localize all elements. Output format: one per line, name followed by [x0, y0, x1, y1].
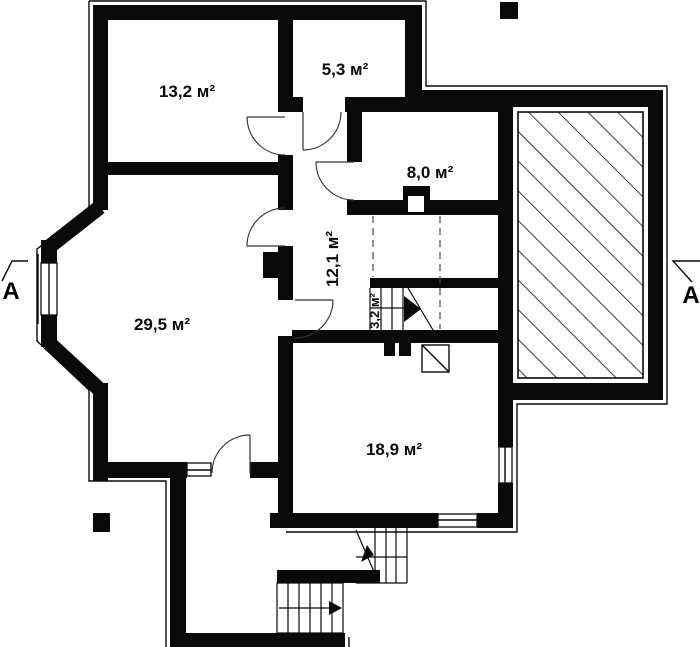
wall-segment — [498, 400, 513, 447]
section-letter-left: A — [2, 278, 19, 305]
door-arc-8-0 — [316, 162, 354, 200]
chimney-stub — [399, 343, 411, 356]
wall-segment — [93, 5, 422, 20]
floor-plan: A A 13,2 м² 5,3 м² 8,0 м² 12,1 м² 3,2 м²… — [0, 0, 700, 647]
room-label-13-2: 13,2 м² — [159, 82, 215, 101]
wall-segment — [292, 330, 498, 343]
wall-segment — [278, 336, 293, 528]
door-arc-13-2 — [247, 117, 285, 155]
wall-segment — [170, 478, 186, 647]
wall-segment — [170, 633, 345, 647]
section-line-right — [673, 261, 700, 282]
wall-segment — [41, 240, 57, 265]
wall-segment — [108, 162, 280, 175]
wall-segment — [270, 513, 438, 528]
stair-direction-arrow — [404, 296, 421, 322]
terrace-hatch-area — [518, 112, 643, 378]
wall-bay-diagonal-bottom — [49, 343, 100, 390]
wall-segment — [293, 97, 303, 112]
section-cut-square-bottom — [93, 513, 110, 532]
room-label-3-2: 3,2 м² — [367, 293, 382, 329]
wall-segment — [347, 112, 362, 162]
room-label-12-1: 12,1 м² — [323, 231, 342, 287]
wall-segment — [405, 18, 422, 107]
stair-arrow-head — [329, 601, 342, 615]
room-label-18-9: 18,9 м² — [366, 440, 422, 459]
wall-segment — [648, 90, 663, 400]
wall-segment — [370, 278, 498, 288]
windows — [38, 254, 512, 527]
wall-segment — [278, 155, 293, 210]
floor-plan-drawing: A A 13,2 м² 5,3 м² 8,0 м² 12,1 м² 3,2 м²… — [0, 0, 700, 647]
wall-segment — [422, 90, 663, 107]
shaft-symbol — [422, 345, 449, 372]
room-label-5-3: 5,3 м² — [322, 60, 369, 79]
wall-segment — [41, 315, 57, 347]
wall-segment — [278, 246, 293, 300]
door-arc-29-5 — [247, 208, 285, 246]
door-arc-exit — [212, 435, 250, 473]
section-letter-right: A — [682, 282, 699, 309]
wall-segment — [93, 18, 108, 210]
door-arc-5-3 — [303, 112, 341, 150]
room-label-8-0: 8,0 м² — [407, 163, 454, 182]
hatched-terrace — [518, 112, 643, 378]
room-label-29-5: 29,5 м² — [134, 315, 190, 334]
wall-segment — [250, 462, 280, 478]
wall-segment — [498, 107, 513, 400]
wall-segment — [498, 483, 513, 528]
wall-segment — [93, 462, 187, 478]
room-labels: 13,2 м² 5,3 м² 8,0 м² 12,1 м² 3,2 м² 29,… — [134, 60, 454, 459]
wall-segment — [513, 383, 663, 400]
section-cut-square-top — [500, 2, 518, 19]
section-marker-a-left: A — [2, 261, 28, 305]
section-marker-a-right: A — [673, 261, 700, 309]
wall-segment — [277, 570, 380, 583]
chimney-stub — [384, 343, 395, 356]
wall-column — [263, 252, 278, 278]
chimney-niche — [408, 196, 424, 212]
wall-segment — [278, 18, 293, 112]
